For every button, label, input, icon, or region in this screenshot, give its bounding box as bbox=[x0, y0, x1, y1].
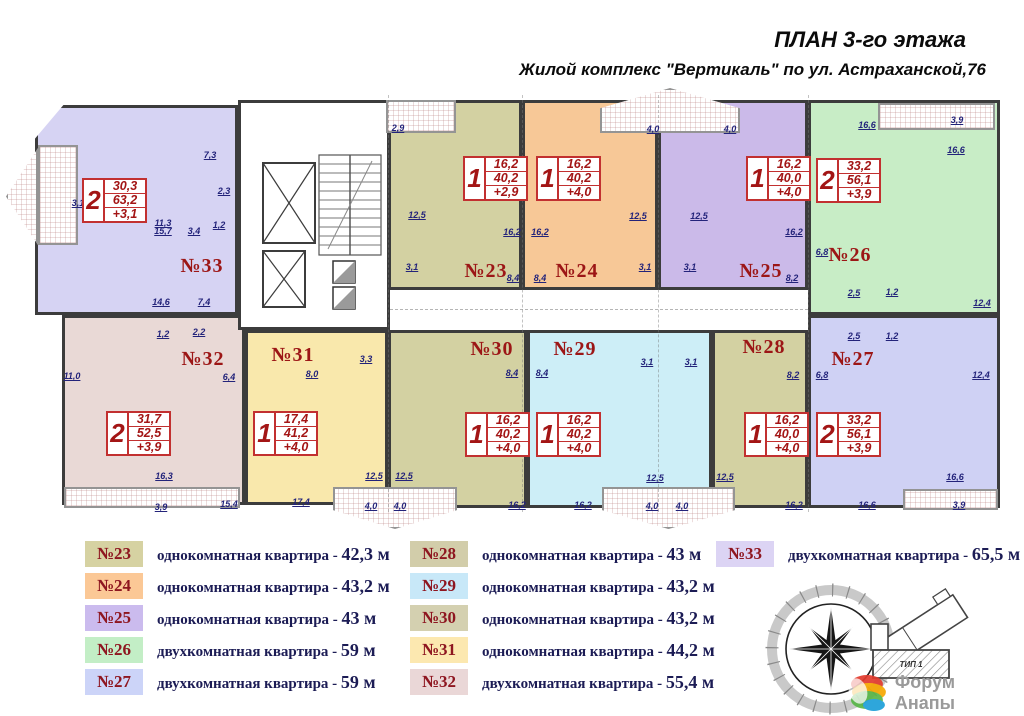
legend-row: №31однокомнатная квартира - 44,2 м bbox=[410, 637, 715, 663]
area-table-value: 63,2 bbox=[105, 194, 145, 208]
area-table-rooms: 2 bbox=[84, 180, 105, 221]
legend-area: 43 м bbox=[667, 544, 702, 564]
legend-row: №30однокомнатная квартира - 43,2 м bbox=[410, 605, 715, 631]
legend-swatch: №28 bbox=[410, 541, 468, 567]
area-table-rooms: 2 bbox=[818, 414, 839, 455]
area-table: 116,240,2+4,0 bbox=[536, 412, 601, 457]
area-table: 116,240,2+2,9 bbox=[463, 156, 528, 201]
area-table: 230,363,2+3,1 bbox=[82, 178, 147, 223]
apartment-26 bbox=[808, 100, 1000, 315]
apartment-number-label: №28 bbox=[742, 336, 785, 359]
dimension-label: 6,4 bbox=[223, 372, 236, 382]
area-table-value: 52,5 bbox=[129, 427, 169, 441]
stairs-elevators-drawing bbox=[241, 103, 387, 327]
dimension-label: 12,5 bbox=[395, 471, 413, 481]
dimension-label: 3,9 bbox=[155, 502, 168, 512]
legend-column-3: №33двухкомнатная квартира - 65,5 м bbox=[716, 541, 1020, 573]
dimension-label: 3,3 bbox=[360, 354, 373, 364]
area-table-rooms: 2 bbox=[108, 413, 129, 454]
stair-core bbox=[238, 100, 390, 330]
watermark-logo: Форум Анапы anapa-forum.ru bbox=[845, 672, 1020, 716]
site-inset-label: ТИП 1 bbox=[899, 660, 923, 669]
dimension-label: 4,0 bbox=[365, 501, 378, 511]
legend-swatch: №33 bbox=[716, 541, 774, 567]
legend-description: однокомнатная квартира - 43 м bbox=[157, 608, 376, 629]
legend-row: №27двухкомнатная квартира - 59 м bbox=[85, 669, 390, 695]
legend-swatch: №25 bbox=[85, 605, 143, 631]
dimension-label: 15,4 bbox=[220, 499, 238, 509]
dimension-label: 8,2 bbox=[787, 370, 800, 380]
area-table-value: 16,2 bbox=[486, 158, 526, 172]
apartment-number-label: №24 bbox=[555, 260, 598, 283]
legend-area: 59 м bbox=[341, 672, 376, 692]
area-table-value: +4,0 bbox=[559, 442, 599, 455]
dimension-label: 7,4 bbox=[198, 297, 211, 307]
area-table: 116,240,0+4,0 bbox=[744, 412, 809, 457]
axis-line bbox=[388, 95, 389, 512]
legend-row: №23однокомнатная квартира - 42,3 м bbox=[85, 541, 390, 567]
legend-description: двухкомнатная квартира - 59 м bbox=[157, 672, 376, 693]
legend-row: №32двухкомнатная квартира - 55,4 м bbox=[410, 669, 715, 695]
area-table-rooms: 1 bbox=[465, 158, 486, 199]
dimension-label: 15,7 bbox=[154, 226, 172, 236]
apartment-number-label: №23 bbox=[464, 260, 507, 283]
dimension-label: 12,4 bbox=[972, 370, 990, 380]
dimension-label: 2,2 bbox=[193, 327, 206, 337]
dimension-label: 16,3 bbox=[155, 471, 173, 481]
dimension-label: 16,2 bbox=[574, 500, 592, 510]
balcony bbox=[600, 88, 740, 133]
legend-row: №33двухкомнатная квартира - 65,5 м bbox=[716, 541, 1020, 567]
dimension-label: 8,4 bbox=[534, 273, 547, 283]
dimension-label: 6,8 bbox=[816, 370, 829, 380]
legend-column-1: №23однокомнатная квартира - 42,3 м№24одн… bbox=[85, 541, 390, 701]
dimension-label: 12,4 bbox=[973, 298, 991, 308]
area-table-value: 30,3 bbox=[105, 180, 145, 194]
axis-line bbox=[658, 95, 659, 512]
dimension-label: 12,5 bbox=[408, 210, 426, 220]
dimension-label: 2,3 bbox=[218, 186, 231, 196]
balcony bbox=[6, 148, 38, 245]
dimension-label: 1,2 bbox=[886, 287, 899, 297]
dimension-label: 8,0 bbox=[306, 369, 319, 379]
area-table-value: 33,2 bbox=[839, 414, 879, 428]
legend-description: однокомнатная квартира - 42,3 м bbox=[157, 544, 390, 565]
apartment-number-label: №26 bbox=[828, 244, 871, 267]
dimension-label: 12,5 bbox=[690, 211, 708, 221]
dimension-label: 14,6 bbox=[152, 297, 170, 307]
dimension-label: 16,6 bbox=[947, 145, 965, 155]
area-table: 231,752,5+3,9 bbox=[106, 411, 171, 456]
dimension-label: 16,6 bbox=[858, 500, 876, 510]
dimension-label: 12,5 bbox=[629, 211, 647, 221]
dimension-label: 8,4 bbox=[536, 368, 549, 378]
dimension-label: 3,1 bbox=[685, 357, 698, 367]
dimension-label: 16,2 bbox=[503, 227, 521, 237]
legend-area: 65,5 м bbox=[972, 544, 1020, 564]
dimension-label: 6,8 bbox=[816, 247, 829, 257]
dimension-label: 12,5 bbox=[365, 471, 383, 481]
area-table: 116,240,2+4,0 bbox=[465, 412, 530, 457]
area-table-value: 16,2 bbox=[769, 158, 809, 172]
dimension-label: 4,0 bbox=[394, 501, 407, 511]
area-table: 116,240,2+4,0 bbox=[536, 156, 601, 201]
dimension-label: 12,5 bbox=[646, 473, 664, 483]
legend-area: 43 м bbox=[342, 608, 377, 628]
dimension-label: 16,2 bbox=[785, 227, 803, 237]
area-table-value: 56,1 bbox=[839, 174, 879, 188]
dimension-label: 1,2 bbox=[886, 331, 899, 341]
area-table: 117,441,2+4,0 bbox=[253, 411, 318, 456]
area-table-value: +4,0 bbox=[769, 186, 809, 199]
dimension-label: 16,6 bbox=[946, 472, 964, 482]
area-table-value: 31,7 bbox=[129, 413, 169, 427]
area-table-value: +2,9 bbox=[486, 186, 526, 199]
apartment-number-label: №32 bbox=[181, 348, 224, 371]
legend-area: 44,2 м bbox=[667, 640, 715, 660]
legend-description: однокомнатная квартира - 43,2 м bbox=[482, 576, 715, 597]
dimension-label: 17,4 bbox=[292, 497, 310, 507]
area-table-value: 40,2 bbox=[559, 428, 599, 442]
dimension-label: 7,3 bbox=[204, 150, 217, 160]
apartment-number-label: №25 bbox=[739, 260, 782, 283]
legend-swatch: №26 bbox=[85, 637, 143, 663]
legend-area: 55,4 м bbox=[666, 672, 714, 692]
area-table: 233,256,1+3,9 bbox=[816, 158, 881, 203]
legend-swatch: №32 bbox=[410, 669, 468, 695]
dimension-label: 3,1 bbox=[641, 357, 654, 367]
dimension-label: 3,4 bbox=[188, 226, 201, 236]
dimension-label: 4,0 bbox=[646, 501, 659, 511]
legend-description: двухкомнатная квартира - 59 м bbox=[157, 640, 376, 661]
area-table-value: 40,2 bbox=[488, 428, 528, 442]
legend-row: №25однокомнатная квартира - 43 м bbox=[85, 605, 390, 631]
balcony bbox=[878, 103, 995, 130]
area-table-rooms: 1 bbox=[255, 413, 276, 454]
dimension-label: 16,2 bbox=[508, 500, 526, 510]
legend-area: 42,3 м bbox=[342, 544, 390, 564]
dimension-label: 8,4 bbox=[507, 273, 520, 283]
dimension-label: 4,0 bbox=[724, 124, 737, 134]
legend-swatch: №30 bbox=[410, 605, 468, 631]
area-table-value: +3,9 bbox=[129, 441, 169, 454]
dimension-label: 8,2 bbox=[786, 273, 799, 283]
dimension-label: 3,9 bbox=[951, 115, 964, 125]
apartment-number-label: №30 bbox=[470, 338, 513, 361]
legend-row: №28однокомнатная квартира - 43 м bbox=[410, 541, 715, 567]
dimension-label: 3,1 bbox=[684, 262, 697, 272]
legend-area: 43,2 м bbox=[342, 576, 390, 596]
legend-area: 43,2 м bbox=[667, 576, 715, 596]
area-table-value: 16,2 bbox=[559, 414, 599, 428]
legend-swatch: №31 bbox=[410, 637, 468, 663]
area-table: 116,240,0+4,0 bbox=[746, 156, 811, 201]
area-table-value: 40,0 bbox=[769, 172, 809, 186]
area-table-value: 33,2 bbox=[839, 160, 879, 174]
dimension-label: 12,5 bbox=[716, 472, 734, 482]
apartment-number-label: №29 bbox=[553, 338, 596, 361]
legend-area: 43,2 м bbox=[667, 608, 715, 628]
balcony bbox=[602, 487, 735, 529]
area-table-rooms: 1 bbox=[746, 414, 767, 455]
corridor-axis-line bbox=[390, 309, 808, 310]
legend-swatch: №23 bbox=[85, 541, 143, 567]
balcony bbox=[38, 145, 78, 245]
legend-row: №24однокомнатная квартира - 43,2 м bbox=[85, 573, 390, 599]
dimension-label: 8,4 bbox=[506, 368, 519, 378]
area-table-value: 40,2 bbox=[559, 172, 599, 186]
area-table-value: +4,0 bbox=[276, 441, 316, 454]
dimension-label: 16,6 bbox=[858, 120, 876, 130]
dimension-label: 2,5 bbox=[848, 331, 861, 341]
area-table-value: +4,0 bbox=[488, 442, 528, 455]
area-table-value: +4,0 bbox=[559, 186, 599, 199]
area-table: 233,256,1+3,9 bbox=[816, 412, 881, 457]
area-table-value: +4,0 bbox=[767, 442, 807, 455]
dimension-label: 4,0 bbox=[676, 501, 689, 511]
area-table-value: 16,2 bbox=[559, 158, 599, 172]
dimension-label: 4,0 bbox=[647, 124, 660, 134]
legend-row: №26двухкомнатная квартира - 59 м bbox=[85, 637, 390, 663]
area-table-value: 17,4 bbox=[276, 413, 316, 427]
legend-swatch: №29 bbox=[410, 573, 468, 599]
area-table-value: 40,0 bbox=[767, 428, 807, 442]
area-table-value: 16,2 bbox=[767, 414, 807, 428]
floor-plan-page: ПЛАН 3-го этажа Жилой комплекс "Вертикал… bbox=[0, 0, 1024, 716]
balcony bbox=[64, 487, 240, 508]
apartment-32 bbox=[62, 315, 245, 505]
legend-description: двухкомнатная квартира - 55,4 м bbox=[482, 672, 714, 693]
legend-area: 59 м bbox=[341, 640, 376, 660]
watermark-title: Форум Анапы bbox=[895, 672, 1020, 714]
area-table-rooms: 1 bbox=[467, 414, 488, 455]
apartment-number-label: №31 bbox=[271, 344, 314, 367]
dimension-label: 2,9 bbox=[392, 123, 405, 133]
area-table-value: +3,1 bbox=[105, 208, 145, 221]
dimension-label: 3,1 bbox=[639, 262, 652, 272]
dimension-label: 16,2 bbox=[531, 227, 549, 237]
legend-description: однокомнатная квартира - 43,2 м bbox=[157, 576, 390, 597]
dimension-label: 1,2 bbox=[157, 329, 170, 339]
dimension-label: 16,2 bbox=[785, 500, 803, 510]
dimension-label: 11,0 bbox=[64, 371, 81, 381]
dimension-label: 3,1 bbox=[406, 262, 419, 272]
area-table-value: 41,2 bbox=[276, 427, 316, 441]
apartment-number-label: №33 bbox=[180, 255, 223, 278]
forum-anapy-icon bbox=[845, 672, 891, 716]
area-table-value: 40,2 bbox=[486, 172, 526, 186]
balcony bbox=[903, 489, 998, 510]
legend-description: однокомнатная квартира - 44,2 м bbox=[482, 640, 715, 661]
area-table-value: +3,9 bbox=[839, 188, 879, 201]
area-table-value: 16,2 bbox=[488, 414, 528, 428]
legend-description: однокомнатная квартира - 43,2 м bbox=[482, 608, 715, 629]
dimension-label: 2,5 bbox=[848, 288, 861, 298]
area-table-value: +3,9 bbox=[839, 442, 879, 455]
dimension-label: 3,9 bbox=[953, 500, 966, 510]
legend-description: двухкомнатная квартира - 65,5 м bbox=[788, 544, 1020, 565]
area-table-rooms: 1 bbox=[538, 158, 559, 199]
area-table-rooms: 2 bbox=[818, 160, 839, 201]
area-table-rooms: 1 bbox=[538, 414, 559, 455]
legend-swatch: №27 bbox=[85, 669, 143, 695]
legend-swatch: №24 bbox=[85, 573, 143, 599]
dimension-label: 1,2 bbox=[213, 220, 226, 230]
apartment-number-label: №27 bbox=[831, 348, 874, 371]
legend-description: однокомнатная квартира - 43 м bbox=[482, 544, 701, 565]
legend-row: №29однокомнатная квартира - 43,2 м bbox=[410, 573, 715, 599]
area-table-rooms: 1 bbox=[748, 158, 769, 199]
area-table-value: 56,1 bbox=[839, 428, 879, 442]
legend-column-2: №28однокомнатная квартира - 43 м№29однок… bbox=[410, 541, 715, 701]
